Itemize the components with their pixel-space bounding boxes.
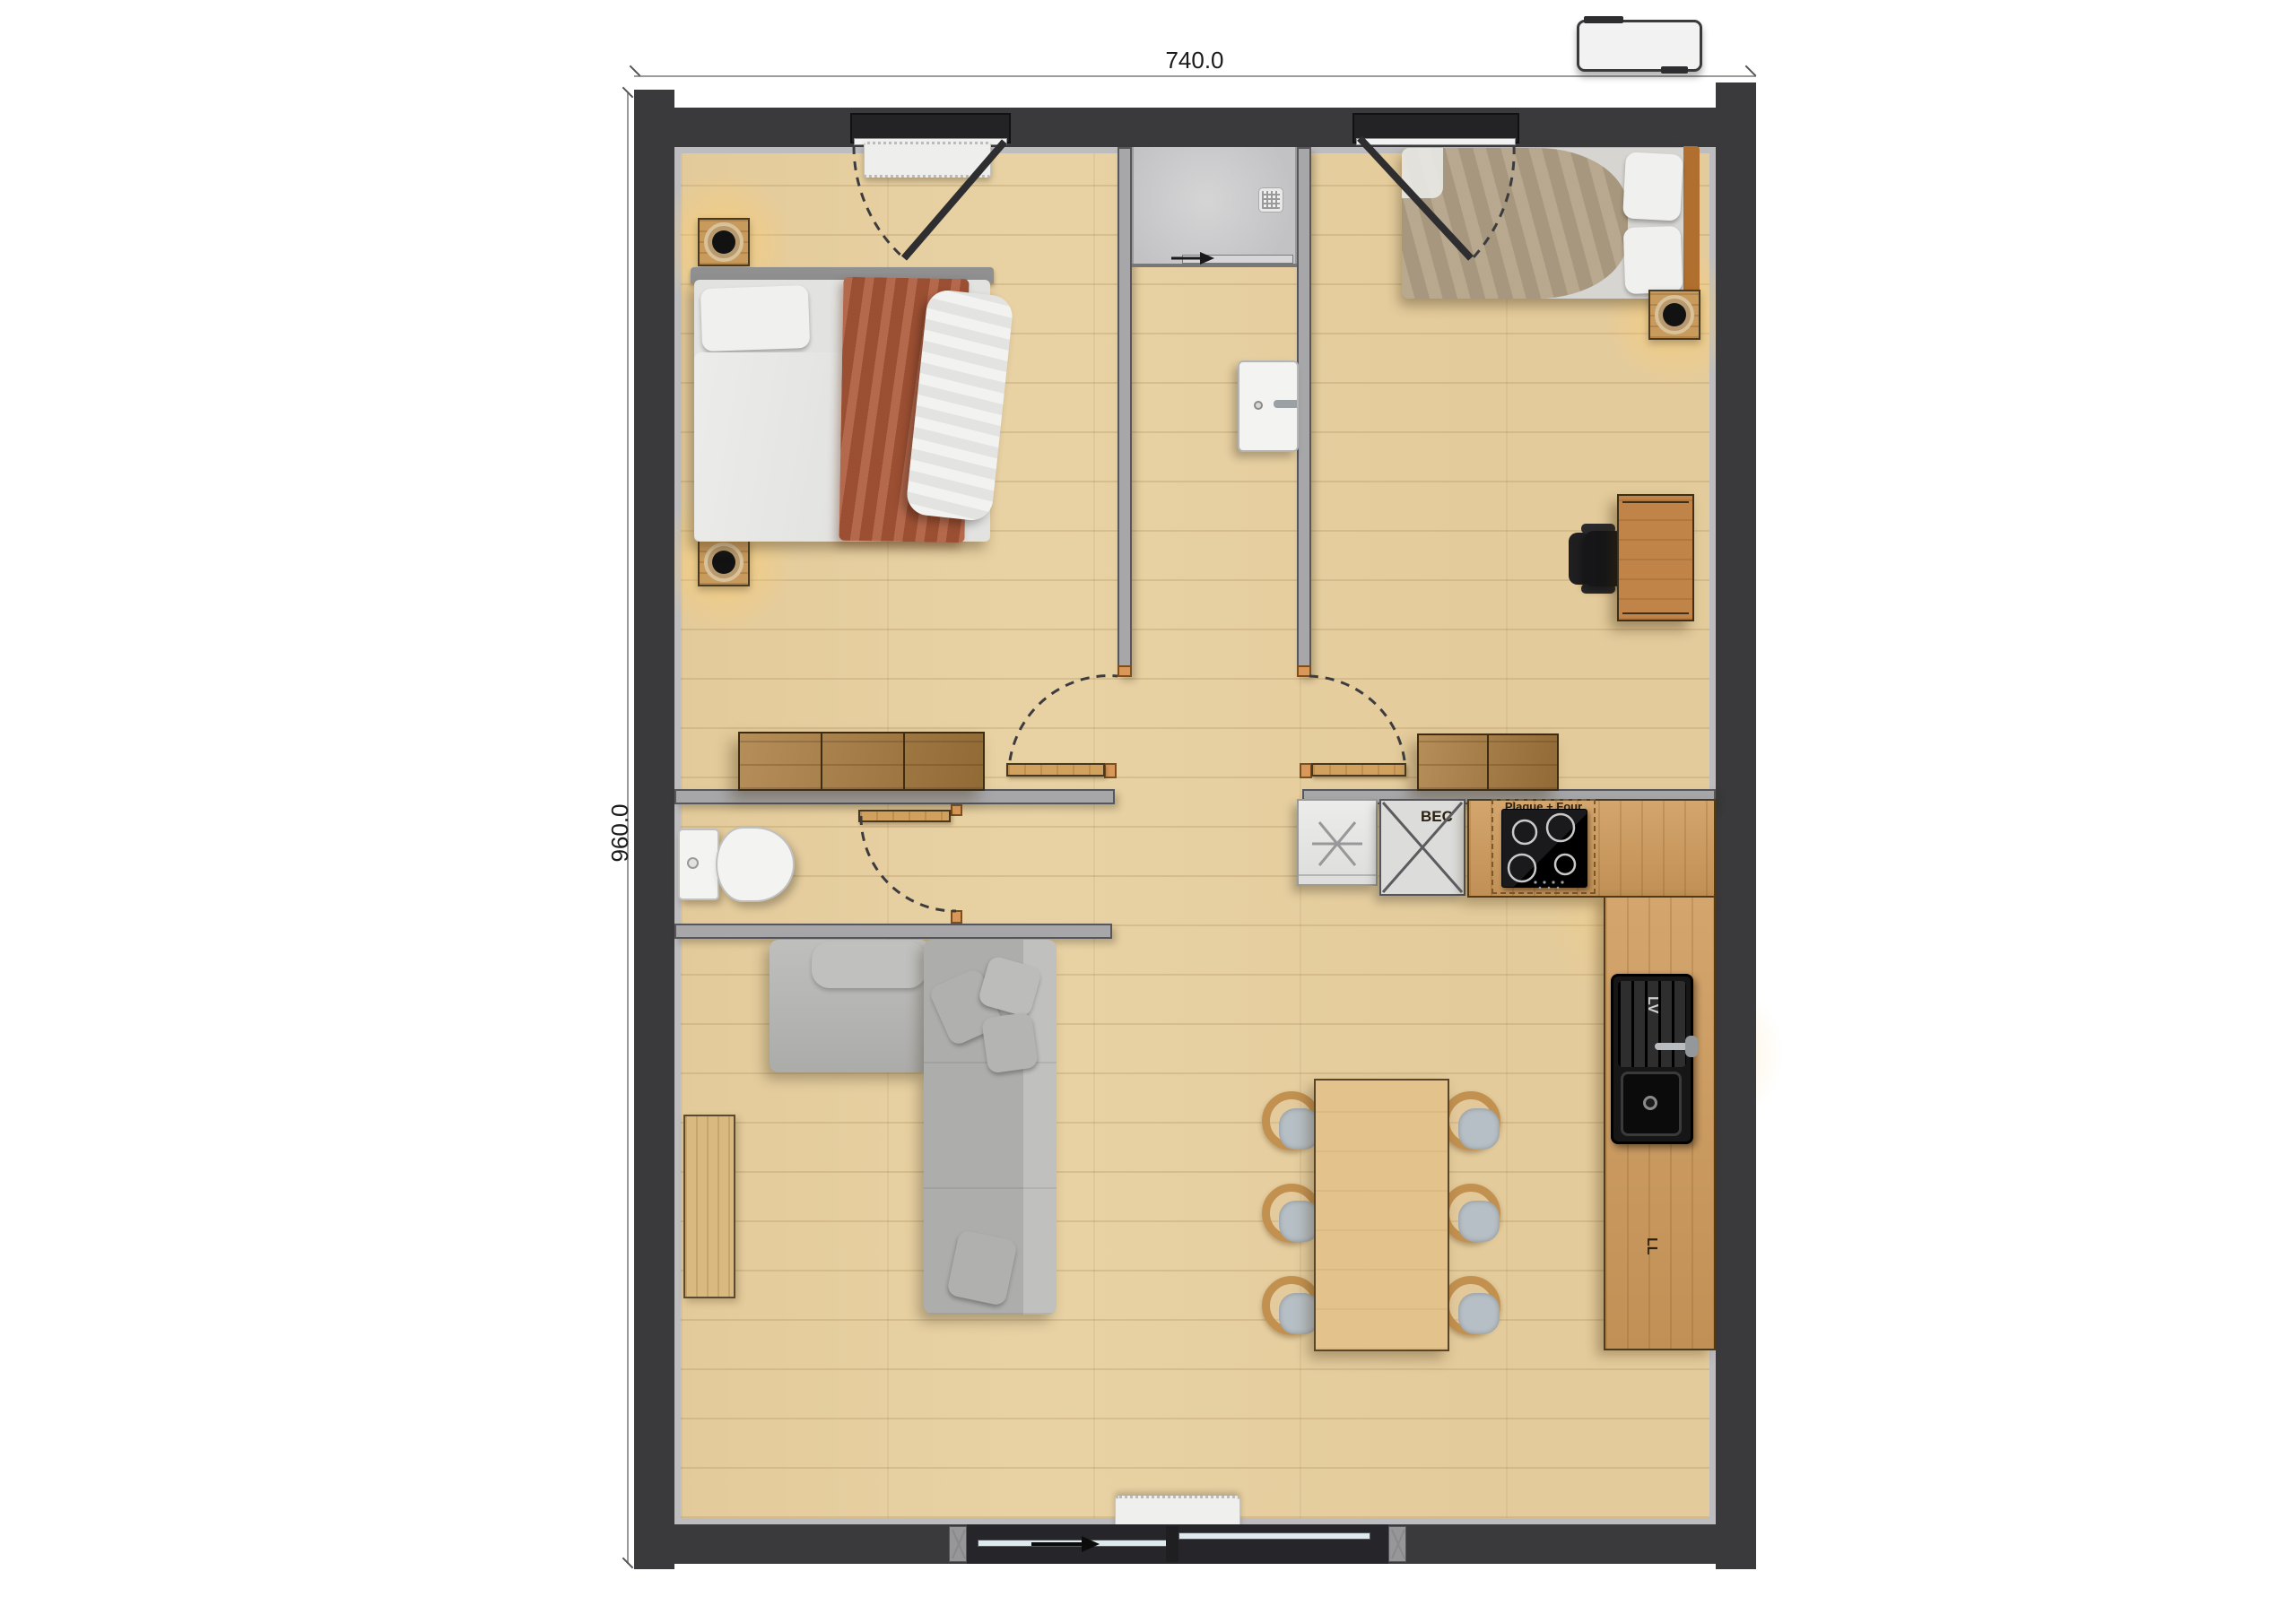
sliding-door-jamb xyxy=(1388,1526,1406,1562)
wall-cap xyxy=(1118,665,1132,677)
dining-chair xyxy=(1262,1276,1321,1335)
sideboard-door-line xyxy=(903,733,905,789)
washer-label: LL xyxy=(1643,1237,1659,1264)
shower-door-track xyxy=(1182,255,1293,264)
door-leaf-wc xyxy=(858,810,951,822)
wall-bathroom-right xyxy=(1297,147,1311,676)
washbasin-faucet xyxy=(1274,400,1297,408)
bed-pillow xyxy=(700,285,810,352)
washbasin-drain xyxy=(1254,401,1263,410)
sofa-headrest xyxy=(812,942,926,988)
sliding-door-mullion xyxy=(1166,1526,1178,1562)
induction-hob xyxy=(1501,809,1587,888)
door-hinge-wc xyxy=(951,804,962,816)
door-leaf-bathroom xyxy=(1311,763,1406,777)
bed-bedroom2 xyxy=(1402,146,1700,300)
table-lamp-shade xyxy=(712,230,735,254)
dimension-width-label: 740.0 xyxy=(1015,47,1374,72)
toilet-cistern xyxy=(678,829,719,900)
bed-headboard xyxy=(1683,146,1700,300)
dining-chair xyxy=(1262,1091,1321,1150)
wall-bathroom-left xyxy=(1118,147,1132,676)
sink-faucet-base xyxy=(1685,1036,1698,1057)
floor-plan-canvas: 740.0 960.0 xyxy=(0,0,2296,1623)
wall-cap xyxy=(1297,665,1311,677)
bed-pillow xyxy=(1623,226,1683,294)
sofa-pillow xyxy=(981,1011,1039,1073)
chair-seat xyxy=(1458,1293,1500,1334)
wall-left xyxy=(634,90,674,1569)
dining-chair xyxy=(1441,1091,1500,1150)
sink-label: LV xyxy=(1644,996,1660,1023)
sliding-door-glass-right xyxy=(1178,1532,1370,1540)
sliding-door-jamb xyxy=(949,1526,967,1562)
wall-right xyxy=(1716,82,1756,1569)
sink-drainboard xyxy=(1618,981,1686,1067)
dining-chair xyxy=(1441,1184,1500,1243)
chair-seat xyxy=(1458,1108,1500,1150)
sideboard-door-line xyxy=(821,733,822,789)
door-stop-wc xyxy=(951,910,962,924)
fridge xyxy=(1297,799,1378,886)
table-lamp-shade xyxy=(1663,303,1686,326)
desk-inner-line xyxy=(1622,501,1689,614)
bed-sheet-fold xyxy=(1402,148,1443,198)
dimension-height-label: 960.0 xyxy=(606,779,631,887)
dining-chair xyxy=(1262,1184,1321,1243)
bed-bedroom1 xyxy=(691,267,994,545)
door-leaf-bedroom1 xyxy=(1006,763,1105,777)
console-shelf xyxy=(683,1115,735,1298)
table-lamp-shade xyxy=(712,551,735,574)
chair-seat xyxy=(1458,1201,1500,1242)
fridge-bottom-line xyxy=(1299,874,1376,876)
radiator-bedroom1 xyxy=(864,142,991,178)
dimension-line-top xyxy=(634,75,1756,77)
dining-table xyxy=(1314,1079,1449,1351)
toilet-flush-button xyxy=(687,857,699,869)
kitchen-sink: LV xyxy=(1611,974,1693,1144)
shower-edge xyxy=(1132,264,1297,267)
toilet-bowl xyxy=(716,827,795,902)
shower-drain xyxy=(1259,188,1283,212)
dining-chair xyxy=(1441,1276,1500,1335)
door-hinge-bedroom1 xyxy=(1104,763,1117,778)
bed-pillow xyxy=(1622,152,1683,221)
door-hinge-bathroom xyxy=(1300,763,1312,778)
desk-chair xyxy=(1569,524,1624,594)
sink-drain xyxy=(1643,1096,1657,1110)
ac-unit xyxy=(1577,20,1702,72)
desk xyxy=(1617,494,1694,621)
ac-unit-tab xyxy=(1584,16,1623,23)
ac-unit-tab xyxy=(1661,66,1688,74)
dresser-bedroom2 xyxy=(1417,733,1559,791)
sliding-door-glass-left xyxy=(978,1540,1168,1547)
wall-wc-south xyxy=(674,924,1112,939)
sideboard-bedroom1 xyxy=(738,732,985,791)
wall-bedroom1-south xyxy=(674,789,1115,804)
dresser-door-line xyxy=(1487,735,1489,789)
kitchen-unit-bec-label: BEC xyxy=(1421,808,1453,826)
kitchen-unit-bec: BEC xyxy=(1379,799,1465,896)
wall-top xyxy=(634,108,1756,147)
window-sill-bedroom2 xyxy=(1356,138,1516,145)
